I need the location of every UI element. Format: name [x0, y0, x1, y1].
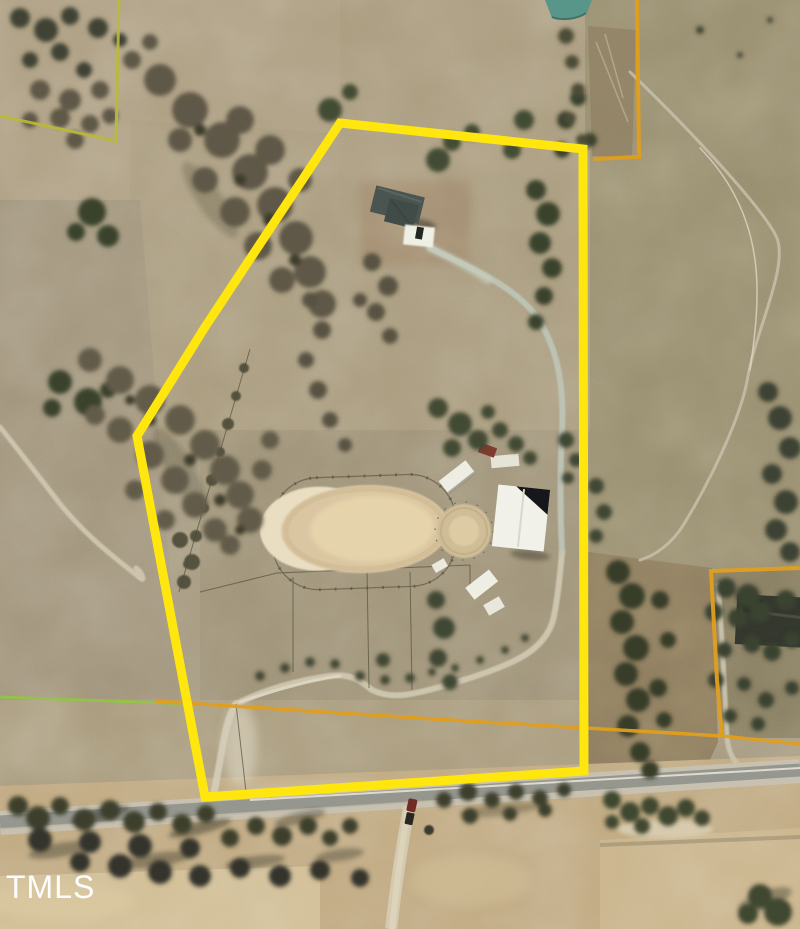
tmls-watermark: TMLS — [6, 869, 95, 905]
map-canvas: TMLS — [0, 0, 800, 929]
grain-overlay — [0, 0, 800, 929]
aerial-parcel-map: TMLS — [0, 0, 800, 929]
